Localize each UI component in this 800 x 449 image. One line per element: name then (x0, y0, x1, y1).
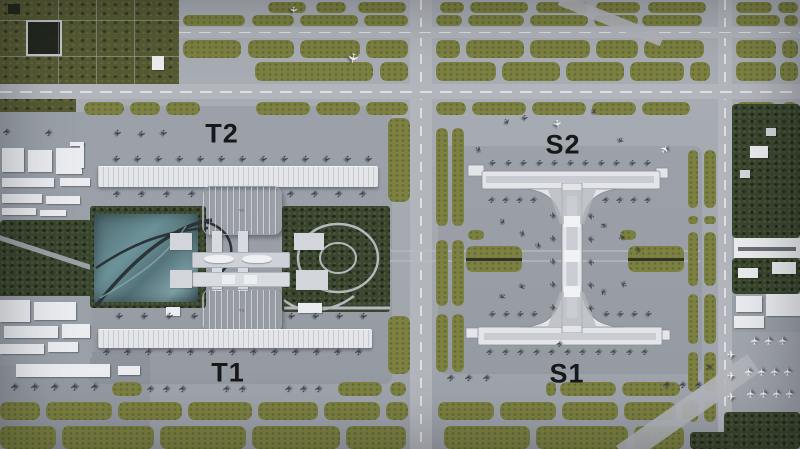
taxiway-centerline (179, 32, 800, 33)
grass-patch (130, 102, 160, 115)
airplane-icon: ✈ (4, 128, 13, 136)
airplane-icon: ✈ (504, 160, 512, 167)
airplane-icon: ✈ (112, 129, 121, 137)
grass-patch (530, 40, 590, 58)
airplane-icon: ✈ (288, 190, 297, 198)
grass-patch (436, 40, 460, 58)
city-building (56, 148, 82, 174)
grass-patch (596, 40, 638, 58)
grass-patch (258, 402, 318, 420)
grass-patch (736, 15, 780, 26)
airplane-icon: ✈ (46, 129, 55, 137)
grass-patch (188, 402, 252, 420)
airplane-icon: ✈ (189, 190, 198, 198)
city-building (4, 326, 58, 338)
city-building (0, 344, 44, 354)
airplane-icon: ✈ (153, 155, 162, 163)
trees-bottom-right (724, 412, 800, 449)
spine-canopy-right (242, 255, 272, 263)
label-t2: T2 (192, 119, 252, 150)
grass-patch (0, 402, 40, 420)
airplane-icon: ✈ (31, 383, 41, 391)
airplane-icon: ✈ (188, 348, 197, 356)
airplane-icon: ✈ (358, 312, 367, 320)
gate-building (152, 56, 164, 70)
airplane-icon: ✈ (516, 197, 524, 204)
airplane-icon: ✈ (300, 155, 309, 163)
grass-patch (346, 426, 406, 449)
airplane-icon: ✈ (588, 304, 595, 312)
city-building (80, 142, 84, 168)
airplane-icon: ✈ (597, 160, 605, 167)
airplane-icon: ✈ (71, 383, 81, 391)
airplane-icon: ✈ (727, 393, 735, 403)
airplane-icon: ✈ (550, 304, 557, 312)
airplane-icon: ✈ (167, 348, 176, 356)
airplane-icon: ✈ (146, 348, 155, 356)
airplane-icon: ✈ (519, 160, 527, 167)
grass-patch (252, 15, 294, 26)
airplane-icon: ✈ (564, 349, 572, 356)
airplane-icon: ✈ (760, 390, 770, 398)
airplane-icon: ✈ (616, 197, 624, 204)
grass-patch (630, 62, 684, 81)
grass-patch (252, 426, 340, 449)
airplane-icon: ✈ (747, 390, 757, 398)
airplane-icon: ✈ (501, 117, 511, 127)
city-building (46, 196, 80, 204)
airplane-icon: ✈ (158, 129, 167, 137)
airplane-icon: ✈ (581, 160, 589, 167)
grass-patch (256, 102, 310, 115)
field-lane (134, 0, 135, 86)
airplane-icon: ✈ (696, 381, 705, 389)
grass-patch (436, 62, 496, 81)
grass-patch (118, 402, 182, 420)
airplane-icon: ✈ (111, 155, 120, 163)
airplane-icon: ✈ (336, 190, 345, 198)
airplane-icon: ✈ (230, 348, 239, 356)
airplane-icon: ✈ (164, 312, 173, 320)
grass-patch (316, 102, 360, 115)
spine-pavilion-right (244, 275, 257, 284)
airplane-icon: ✈ (626, 349, 634, 356)
airplane-icon: ✈ (486, 349, 494, 356)
airplane-icon: ✈ (342, 155, 351, 163)
airplane-icon: ✈ (502, 197, 510, 204)
airplane-icon: ✈ (550, 212, 557, 220)
airplane-icon: ✈ (180, 385, 189, 393)
airplane-icon: ✈ (556, 341, 564, 348)
grass-patch (778, 2, 798, 13)
airplane-icon: ✈ (189, 312, 198, 320)
airplane-icon: ✈ (484, 374, 493, 382)
grass-patch (436, 128, 448, 226)
airplane-icon: ✈ (114, 190, 123, 198)
spine-block-right-upper (294, 233, 324, 250)
airplane-icon: ✈ (664, 381, 673, 389)
grass-patch (466, 40, 524, 58)
estate-building (766, 128, 776, 136)
airplane-icon: ✈ (630, 311, 638, 318)
airplane-icon: ✈ (279, 155, 288, 163)
airplane-icon: ✈ (125, 348, 134, 356)
airplane-icon: ✈ (148, 385, 157, 393)
airplane-icon: ✈ (466, 374, 475, 382)
airplane-icon: ✈ (644, 311, 652, 318)
city-building (40, 210, 66, 216)
grass-patch (183, 15, 245, 26)
city-building (0, 300, 30, 322)
city-building (2, 194, 42, 203)
airplane-icon: ✈ (615, 135, 625, 145)
grass-patch (84, 102, 124, 115)
grass-patch (248, 40, 294, 58)
airplane-icon: ✈ (588, 107, 598, 117)
airplane-icon: ✈ (360, 190, 369, 198)
airplane-icon: ✈ (139, 312, 148, 320)
airplane-icon: ✈ (272, 348, 281, 356)
retention-pond (26, 20, 62, 56)
runway-centerline (420, 0, 422, 449)
hangar (736, 296, 762, 312)
grass-patch (736, 40, 776, 58)
airplane-icon: ✈ (784, 368, 794, 376)
grass-patch (444, 426, 530, 449)
grass-patch (592, 102, 636, 115)
airplane-icon: ✈ (680, 381, 689, 389)
label-s2: S2 (533, 130, 593, 161)
dark-plot (8, 4, 20, 14)
airplane-icon: ✈ (136, 130, 145, 138)
spine-canopy-left (204, 255, 234, 263)
t1-roof-label: T1 (239, 309, 245, 314)
grass-patch (255, 62, 373, 81)
grass-patch (562, 402, 618, 420)
airplane-icon: ✈ (588, 258, 595, 266)
grass-patch (160, 426, 246, 449)
airplane-icon: ✈ (566, 160, 574, 167)
grass-patch (532, 102, 586, 115)
airplane-icon: ✈ (310, 312, 319, 320)
airplane-icon: ✈ (516, 311, 524, 318)
field-lane (96, 0, 97, 86)
airplane-icon: ✈ (164, 385, 173, 393)
airplane-icon: ✈ (602, 197, 610, 204)
t1-concourse-pier (98, 329, 372, 348)
t2-roof-label: T2 (239, 208, 245, 213)
grass-patch (358, 2, 406, 13)
airplane-icon: ✈ (550, 281, 557, 289)
airplane-icon: ✈ (258, 155, 267, 163)
airplane-icon: ✈ (321, 155, 330, 163)
grass-patch (566, 62, 624, 81)
airplane-icon: ✈ (588, 235, 595, 243)
airport-aerial-view: T2 T1 (0, 0, 800, 449)
airplane-icon: ✈ (114, 312, 123, 320)
city-building (34, 302, 76, 320)
airplane-icon: ✈ (502, 311, 510, 318)
airplane-icon: ✈ (641, 349, 649, 356)
grass-patch (704, 150, 716, 208)
airplane-icon: ✈ (11, 383, 21, 391)
airplane-icon: ✈ (765, 337, 775, 345)
grass-patch (472, 102, 526, 115)
field-lane (58, 0, 59, 86)
airplane-icon: ✈ (534, 241, 542, 250)
city-building (28, 150, 52, 172)
airplane-icon: ✈ (195, 155, 204, 163)
airplane-icon: ✈ (334, 312, 343, 320)
grass-patch (366, 40, 408, 58)
city-building (2, 208, 36, 215)
grass-patch (380, 62, 408, 81)
airplane-icon: ✈ (356, 348, 365, 356)
airplane-icon: ✈ (535, 160, 543, 167)
grass-patch (780, 62, 798, 81)
airplane-icon: ✈ (786, 390, 796, 398)
airplane-icon: ✈ (610, 349, 618, 356)
airplane-icon: ✈ (530, 197, 538, 204)
airplane-icon: ✈ (251, 348, 260, 356)
airplane-icon: ✈ (644, 197, 652, 204)
grass-patch (440, 2, 464, 13)
estate-building (738, 268, 758, 278)
grass-patch (502, 62, 560, 81)
grass-patch (642, 102, 690, 115)
airplane-icon: ✈ (216, 155, 225, 163)
airplane-icon: ✈ (91, 383, 101, 391)
airplane-icon: ✈ (174, 155, 183, 163)
grass-patch (704, 232, 716, 286)
grass-patch (436, 240, 448, 306)
city-building (2, 178, 54, 187)
grass-patch (736, 62, 776, 81)
airplane-icon: ✈ (634, 245, 642, 254)
airplane-icon: ✈ (771, 368, 781, 376)
airplane-icon: ✈ (209, 348, 218, 356)
label-s1: S1 (537, 359, 597, 390)
city-building (48, 342, 78, 352)
estate-building (750, 146, 768, 158)
grass-patch (704, 294, 716, 344)
grass-patch (736, 2, 772, 13)
hangar (734, 316, 764, 328)
airplane-icon: ✈ (293, 348, 302, 356)
airplane-icon: ✈ (588, 212, 595, 220)
trees-bottom-right (690, 432, 730, 449)
estate-building (740, 170, 750, 178)
airplane-icon: ✈ (301, 385, 310, 393)
airplane-icon: ✈ (727, 351, 735, 361)
city-building (2, 148, 24, 172)
grass-patch (386, 402, 408, 420)
grass-patch (112, 382, 142, 396)
estate-building (772, 262, 796, 274)
grass-patch (536, 426, 628, 449)
grass-patch (324, 402, 380, 420)
field-lane (0, 20, 179, 21)
spine-block-right-lower (296, 270, 328, 290)
airplane-icon: ✈ (488, 311, 496, 318)
airplane-icon: ✈ (345, 52, 360, 65)
airplane-icon: ✈ (312, 190, 321, 198)
airplane-icon: ✈ (779, 337, 789, 345)
spine-pavilion-left (222, 275, 235, 284)
label-t1: T1 (198, 358, 258, 389)
airplane-icon: ✈ (550, 119, 561, 129)
spine-block-left-upper (170, 233, 192, 250)
building-windows (738, 247, 796, 251)
grass-patch (690, 62, 710, 81)
airplane-icon: ✈ (773, 390, 783, 398)
grass-patch (500, 402, 556, 420)
city-building (118, 366, 140, 375)
grass-patch (62, 426, 154, 449)
airplane-icon: ✈ (502, 349, 510, 356)
airplane-icon: ✈ (588, 281, 595, 289)
grass-patch (388, 316, 410, 374)
airplane-icon: ✈ (530, 311, 538, 318)
airplane-icon: ✈ (316, 385, 325, 393)
airplane-icon: ✈ (363, 155, 372, 163)
airplane-icon: ✈ (727, 372, 735, 382)
grass-patch (468, 15, 524, 26)
satellite-concourse-s1-s2 (455, 148, 700, 370)
airplane-icon: ✈ (548, 349, 556, 356)
airplane-icon: ✈ (550, 160, 558, 167)
grass-patch (436, 15, 462, 26)
grass-patch (166, 102, 200, 115)
grass-patch (366, 102, 408, 115)
airplane-icon: ✈ (745, 368, 755, 376)
grass-patch (436, 314, 448, 372)
grass-patch (784, 15, 798, 26)
airplane-icon: ✈ (550, 235, 557, 243)
grass-patch (300, 15, 358, 26)
airplane-icon: ✈ (533, 349, 541, 356)
airplane-icon: ✈ (488, 160, 496, 167)
airplane-icon: ✈ (488, 197, 496, 204)
airplane-icon: ✈ (630, 197, 638, 204)
grass-patch (338, 382, 382, 396)
airplane-icon: ✈ (164, 190, 173, 198)
city-building (16, 364, 110, 377)
airplane-icon: ✈ (139, 190, 148, 198)
grass-patch (470, 2, 528, 13)
airplane-icon: ✈ (51, 383, 61, 391)
airplane-icon: ✈ (550, 258, 557, 266)
airplane-icon: ✈ (616, 311, 624, 318)
airplane-icon: ✈ (335, 348, 344, 356)
grass-patch (642, 15, 702, 26)
grass-patch (648, 2, 706, 13)
grass-patch (438, 402, 494, 420)
airplane-icon: ✈ (448, 374, 457, 382)
airplane-icon: ✈ (595, 349, 603, 356)
city-building (60, 178, 90, 186)
grass-patch (388, 118, 410, 202)
airplane-icon: ✈ (132, 155, 141, 163)
airplane-icon: ✈ (628, 160, 636, 167)
t2-terminal-building: T2 (202, 186, 282, 235)
grass-patch (530, 15, 588, 26)
grass-patch (183, 40, 241, 58)
grass-patch (0, 426, 56, 449)
t1-terminal-building: T1 (202, 289, 282, 333)
grass-patch (46, 402, 112, 420)
airplane-icon: ✈ (286, 312, 295, 320)
airplane-icon: ✈ (314, 348, 323, 356)
grass-patch (782, 40, 798, 58)
airplane-icon: ✈ (104, 348, 113, 356)
airplane-icon: ✈ (602, 311, 610, 318)
spine-block-left-lower (170, 270, 192, 288)
spine-cross-slab-lower (192, 272, 290, 287)
runway-centerline (0, 91, 800, 93)
airplane-icon: ✈ (751, 337, 761, 345)
grass-patch (704, 216, 716, 224)
grass-patch (390, 382, 406, 396)
airplane-icon: ✈ (579, 349, 587, 356)
airplane-icon: ✈ (520, 115, 528, 122)
airplane-icon: ✈ (237, 155, 246, 163)
airplane-icon: ✈ (286, 385, 295, 393)
hangar (766, 294, 800, 316)
grass-patch (436, 102, 466, 115)
airplane-icon: ✈ (288, 6, 297, 14)
city-building (62, 324, 90, 338)
airplane-icon: ✈ (612, 160, 620, 167)
airplane-icon: ✈ (643, 160, 651, 167)
t2-concourse-pier (98, 166, 378, 187)
airplane-icon: ✈ (758, 368, 768, 376)
grass-patch (364, 15, 408, 26)
grass-patch (316, 2, 346, 13)
airplane-icon: ✈ (517, 349, 525, 356)
